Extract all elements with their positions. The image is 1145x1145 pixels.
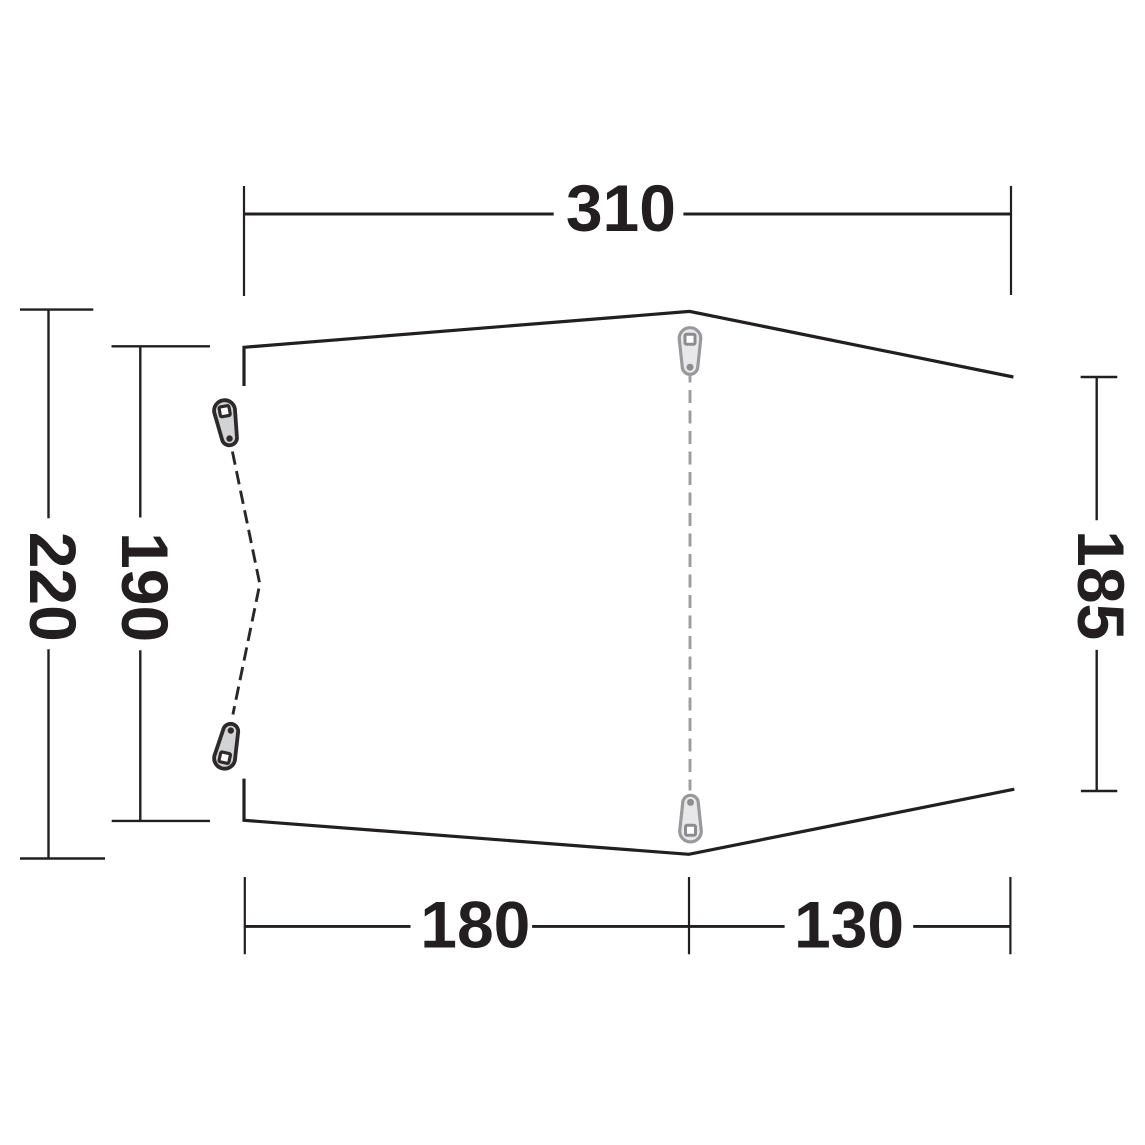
svg-text:130: 130	[794, 888, 904, 962]
svg-text:220: 220	[16, 532, 90, 642]
svg-text:185: 185	[1064, 530, 1138, 640]
svg-text:190: 190	[108, 532, 182, 642]
svg-text:180: 180	[420, 888, 530, 962]
svg-text:310: 310	[566, 171, 676, 245]
